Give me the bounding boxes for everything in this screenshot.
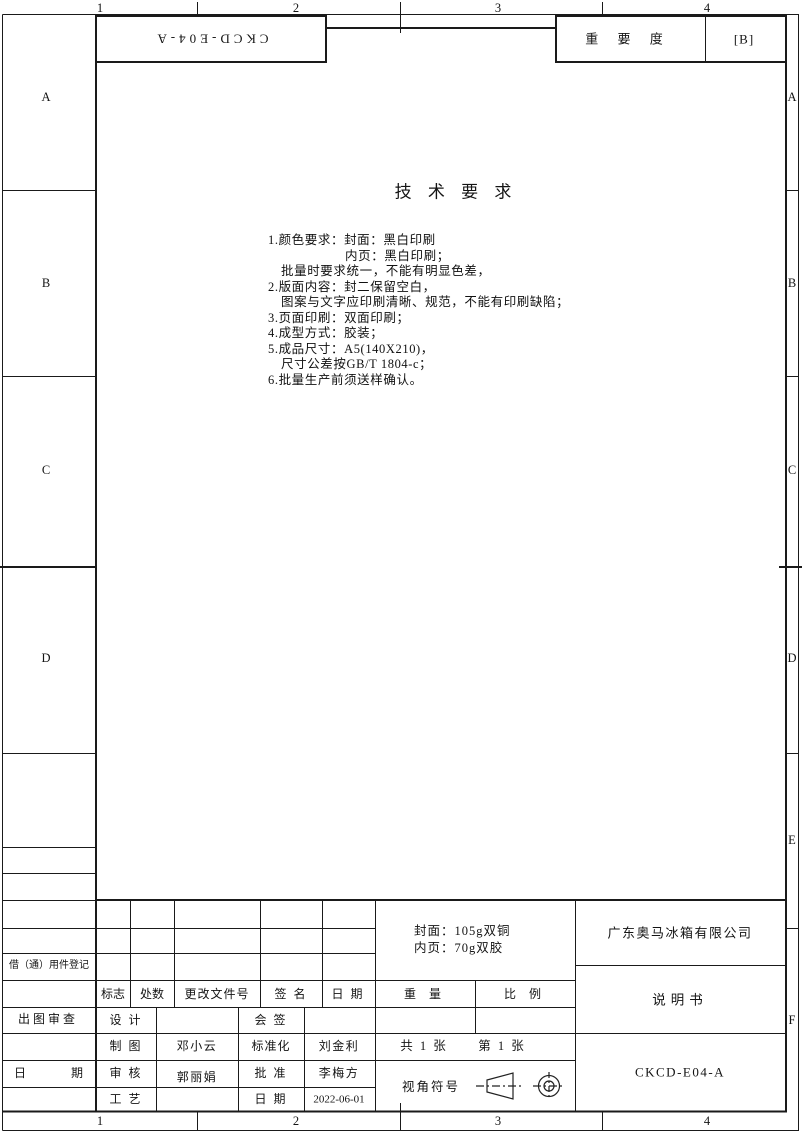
zone-col-label-bottom-4: 4 [704, 1115, 710, 1128]
zone-row-label-left-b: B [42, 277, 50, 290]
approve-label: 批 准 [254, 1067, 287, 1079]
zone-col-label-bottom-2: 2 [293, 1115, 299, 1128]
tech-line: 1.颜色要求：封面：黑白印刷 [268, 233, 569, 249]
zone-col-label-top-4: 4 [704, 1, 710, 14]
draft-name: 邓小云 [177, 1040, 218, 1052]
date-label-left-char: 日 [14, 1067, 26, 1079]
company-name: 广东奥马冰箱有限公司 [607, 927, 752, 940]
zone-col-label-top-1: 1 [97, 1, 103, 14]
approve-name: 李梅方 [319, 1067, 360, 1079]
zone-col-label-bottom-1: 1 [97, 1115, 103, 1128]
drawing-review-label: 出图审查 [18, 1013, 78, 1025]
zone-row-label-left-c: C [42, 464, 50, 477]
zone-row-label-right-a: A [787, 91, 796, 104]
tech-line: 内页：黑白印刷； [268, 249, 569, 265]
weight-label: 重 量 [404, 988, 446, 1000]
importance-value: [B] [734, 33, 754, 46]
borrow-register-label: 借（通）用件登记 [9, 961, 89, 971]
sheets-number: 第 1 张 [478, 1040, 526, 1053]
zone-row-label-right-f: F [789, 1014, 796, 1027]
date-label-right-char: 期 [71, 1067, 83, 1079]
standardization-name: 刘金利 [319, 1040, 360, 1052]
rotated-drawing-code: CKCD-E04-A [153, 33, 268, 46]
date-label: 日 期 [254, 1093, 287, 1105]
document-title: 说明书 [652, 993, 708, 1007]
check-label: 审 核 [109, 1067, 142, 1079]
tech-requirements-body: 1.颜色要求：封面：黑白印刷 内页：黑白印刷； 批量时要求统一，不能有明显色差，… [268, 233, 569, 388]
view-angle-symbols [476, 1072, 565, 1100]
frame-grid [0, 0, 802, 1134]
design-label: 设 计 [109, 1014, 142, 1026]
draft-label: 制 图 [109, 1040, 142, 1052]
craft-label: 工 艺 [109, 1093, 142, 1105]
rev-qty-header: 处数 [140, 988, 164, 1000]
tech-line: 图案与文字应印刷清晰、规范，不能有印刷缺陷； [268, 295, 569, 311]
zone-row-label-right-d: D [787, 652, 796, 665]
tech-line: 6.批量生产前须送样确认。 [268, 373, 569, 389]
zone-row-label-right-c: C [788, 464, 796, 477]
countersign-label: 会 签 [254, 1014, 287, 1026]
tech-line: 批量时要求统一，不能有明显色差， [268, 264, 569, 280]
zone-col-label-top-3: 3 [495, 1, 501, 14]
zone-col-label-top-2: 2 [293, 1, 299, 14]
importance-label: 重 要 度 [585, 33, 671, 46]
tech-line: 尺寸公差按GB/T 1804-c； [268, 357, 569, 373]
scale-label: 比 例 [504, 988, 546, 1000]
drawing-sheet: 1 2 3 4 1 2 3 4 A B C D A B C D E F CKCD… [0, 0, 802, 1134]
rev-doc-header: 更改文件号 [184, 988, 249, 1000]
standardization-label: 标准化 [251, 1040, 290, 1052]
rev-sign-header: 签 名 [274, 988, 307, 1000]
view-angle-label: 视角符号 [402, 1081, 460, 1094]
tech-line: 5.成品尺寸：A5(140X210)， [268, 342, 569, 358]
zone-row-label-left-d: D [41, 652, 50, 665]
paper-spec-cover: 封面：105g双铜 [414, 925, 511, 938]
tech-line: 4.成型方式：胶装； [268, 326, 569, 342]
tech-requirements-title: 技 术 要 求 [395, 184, 518, 201]
rev-mark-header: 标志 [101, 988, 125, 1000]
drawing-number: CKCD-E04-A [635, 1066, 725, 1079]
date-value: 2022-06-01 [313, 1095, 364, 1106]
paper-spec-inner: 内页：70g双胶 [414, 942, 503, 955]
rev-date-header: 日 期 [331, 988, 364, 1000]
zone-row-label-left-a: A [41, 91, 50, 104]
zone-row-label-right-e: E [788, 834, 796, 847]
sheets-total: 共 1 张 [400, 1040, 448, 1053]
tech-line: 2.版面内容：封二保留空白， [268, 280, 569, 296]
check-name: 郭丽娟 [177, 1071, 218, 1083]
zone-col-label-bottom-3: 3 [495, 1115, 501, 1128]
tech-line: 3.页面印刷：双面印刷； [268, 311, 569, 327]
zone-row-label-right-b: B [788, 277, 796, 290]
